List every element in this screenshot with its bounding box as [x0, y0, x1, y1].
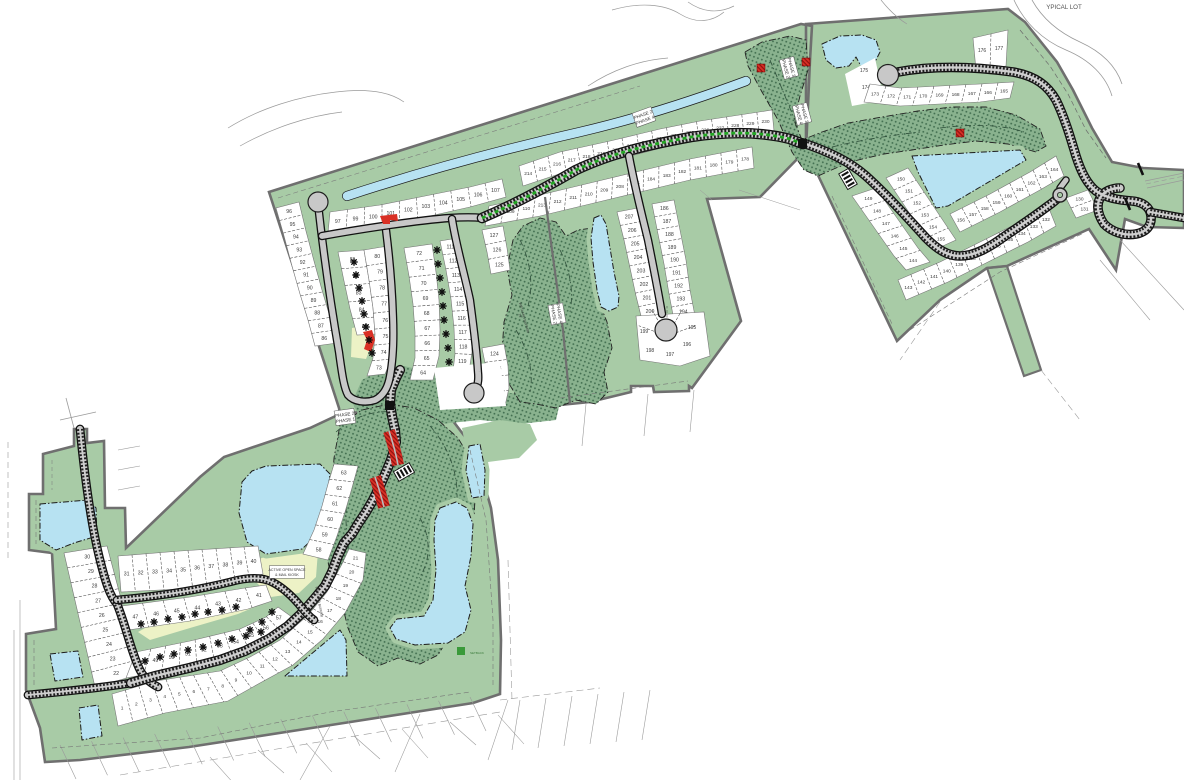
svg-text:117: 117 — [459, 330, 467, 336]
svg-text:36: 36 — [194, 566, 200, 572]
svg-text:204: 204 — [634, 255, 643, 261]
svg-text:215: 215 — [539, 166, 547, 172]
svg-text:43: 43 — [215, 602, 221, 608]
svg-text:171: 171 — [903, 94, 911, 100]
svg-text:212: 212 — [554, 199, 562, 205]
svg-text:114: 114 — [454, 287, 462, 293]
svg-text:24: 24 — [106, 642, 112, 648]
svg-text:60: 60 — [327, 517, 333, 523]
svg-text:176: 176 — [978, 48, 987, 54]
svg-text:33: 33 — [152, 570, 158, 576]
svg-text:27: 27 — [95, 598, 101, 604]
svg-text:172: 172 — [887, 94, 895, 100]
svg-text:139: 139 — [955, 262, 963, 268]
svg-text:147: 147 — [882, 221, 890, 227]
svg-text:102: 102 — [404, 208, 413, 214]
svg-text:195: 195 — [688, 325, 697, 331]
svg-text:170: 170 — [919, 94, 927, 100]
svg-text:154: 154 — [929, 225, 937, 231]
svg-text:91: 91 — [303, 273, 309, 279]
svg-text:179: 179 — [725, 160, 733, 166]
svg-text:37: 37 — [208, 564, 214, 570]
svg-text:86: 86 — [321, 336, 327, 342]
svg-text:144: 144 — [909, 258, 917, 264]
svg-text:87: 87 — [318, 323, 324, 329]
svg-text:1: 1 — [121, 706, 124, 712]
svg-text:178: 178 — [741, 157, 749, 163]
svg-text:118: 118 — [459, 345, 467, 351]
svg-text:13: 13 — [285, 649, 291, 655]
svg-text:90: 90 — [307, 285, 313, 291]
svg-text:206: 206 — [628, 228, 637, 234]
svg-text:YPICAL LOT: YPICAL LOT — [1046, 4, 1082, 11]
svg-text:70: 70 — [421, 281, 427, 287]
svg-text:34: 34 — [166, 569, 172, 575]
svg-text:15: 15 — [307, 630, 313, 636]
svg-text:132: 132 — [1042, 217, 1050, 223]
svg-text:156: 156 — [957, 218, 965, 224]
svg-text:127: 127 — [490, 233, 499, 239]
svg-text:57: 57 — [276, 615, 282, 621]
svg-text:196: 196 — [683, 342, 692, 348]
svg-text:74: 74 — [381, 350, 387, 356]
svg-text:165: 165 — [1000, 89, 1008, 95]
svg-text:8: 8 — [221, 683, 224, 689]
svg-text:62: 62 — [336, 486, 342, 492]
svg-text:230: 230 — [761, 119, 769, 125]
svg-text:30: 30 — [84, 555, 90, 561]
svg-text:68: 68 — [424, 311, 430, 317]
svg-text:207: 207 — [625, 215, 634, 221]
svg-text:40: 40 — [251, 559, 257, 565]
svg-text:184: 184 — [647, 177, 655, 183]
svg-text:190: 190 — [670, 258, 679, 264]
svg-text:96: 96 — [286, 209, 292, 215]
svg-text:5: 5 — [178, 691, 181, 697]
svg-text:229: 229 — [746, 121, 754, 127]
svg-text:209: 209 — [600, 188, 608, 194]
svg-text:124: 124 — [490, 351, 499, 357]
svg-text:157: 157 — [969, 212, 977, 218]
svg-text:88: 88 — [314, 311, 320, 317]
svg-text:29: 29 — [88, 569, 94, 575]
svg-text:10: 10 — [246, 671, 252, 677]
svg-text:71: 71 — [419, 266, 425, 272]
svg-text:4: 4 — [163, 694, 166, 700]
svg-text:131: 131 — [1080, 207, 1088, 213]
svg-text:150: 150 — [897, 177, 905, 183]
svg-text:79: 79 — [377, 270, 383, 276]
svg-text:42: 42 — [236, 598, 242, 604]
svg-text:25: 25 — [103, 627, 109, 633]
svg-text:216: 216 — [553, 162, 561, 168]
svg-text:47: 47 — [133, 614, 139, 620]
svg-text:11: 11 — [260, 664, 265, 670]
svg-text:32: 32 — [138, 570, 144, 576]
svg-text:187: 187 — [663, 219, 672, 225]
svg-text:105: 105 — [456, 197, 465, 203]
svg-text:115: 115 — [456, 301, 464, 307]
svg-text:7: 7 — [207, 686, 210, 692]
svg-text:22: 22 — [113, 671, 119, 677]
svg-text:35: 35 — [180, 567, 186, 573]
svg-text:186: 186 — [660, 206, 669, 212]
svg-text:SETBACK: SETBACK — [470, 651, 484, 655]
svg-text:202: 202 — [640, 282, 649, 288]
svg-text:152: 152 — [913, 201, 921, 207]
svg-text:208: 208 — [616, 184, 624, 190]
svg-text:161: 161 — [1016, 187, 1024, 193]
svg-text:141: 141 — [930, 274, 938, 280]
svg-text:41: 41 — [256, 593, 262, 599]
svg-text:155: 155 — [937, 237, 945, 243]
svg-text:159: 159 — [992, 200, 1000, 206]
svg-text:119: 119 — [458, 359, 466, 365]
svg-text:167: 167 — [968, 91, 976, 97]
svg-text:142: 142 — [917, 279, 925, 285]
svg-text:93: 93 — [296, 247, 302, 253]
svg-text:214: 214 — [524, 171, 532, 177]
svg-text:2: 2 — [135, 702, 138, 708]
svg-text:58: 58 — [316, 547, 322, 553]
svg-text:143: 143 — [904, 285, 912, 291]
svg-text:182: 182 — [678, 169, 686, 175]
svg-text:14: 14 — [296, 639, 302, 645]
svg-text:94: 94 — [293, 235, 299, 241]
svg-text:198: 198 — [646, 348, 655, 354]
svg-text:191: 191 — [672, 271, 681, 277]
svg-text:168: 168 — [952, 92, 960, 98]
svg-text:130: 130 — [1075, 197, 1083, 203]
svg-text:201: 201 — [643, 296, 652, 302]
svg-text:28: 28 — [92, 584, 98, 590]
svg-text:183: 183 — [663, 173, 671, 179]
svg-text:31: 31 — [124, 571, 130, 577]
svg-text:106: 106 — [474, 193, 483, 199]
svg-text:173: 173 — [871, 92, 879, 98]
svg-text:116: 116 — [457, 316, 465, 322]
svg-text:ACTIVE OPEN SPACE: ACTIVE OPEN SPACE — [268, 568, 306, 572]
svg-text:100: 100 — [369, 214, 378, 220]
svg-text:197: 197 — [666, 352, 675, 358]
svg-text:107: 107 — [491, 188, 500, 194]
svg-text:63: 63 — [341, 471, 347, 477]
svg-text:193: 193 — [676, 297, 685, 303]
svg-text:76: 76 — [382, 318, 388, 324]
svg-text:210: 210 — [585, 192, 593, 198]
svg-text:73: 73 — [376, 365, 382, 371]
svg-text:153: 153 — [921, 213, 929, 219]
svg-text:78: 78 — [379, 286, 385, 292]
svg-text:45: 45 — [174, 609, 180, 615]
svg-text:20: 20 — [349, 570, 355, 576]
svg-text:92: 92 — [300, 260, 306, 266]
svg-text:9: 9 — [235, 677, 238, 683]
svg-text:72: 72 — [416, 251, 422, 257]
svg-text:67: 67 — [424, 326, 430, 332]
svg-text:56: 56 — [263, 626, 269, 632]
svg-text:180: 180 — [710, 163, 718, 169]
svg-text:59: 59 — [322, 532, 328, 538]
svg-text:6: 6 — [192, 689, 195, 695]
svg-text:125: 125 — [495, 263, 504, 269]
svg-text:199: 199 — [640, 329, 649, 335]
svg-text:104: 104 — [439, 201, 448, 207]
svg-text:133: 133 — [1030, 224, 1038, 230]
svg-text:175: 175 — [860, 68, 869, 74]
svg-text:113: 113 — [452, 273, 460, 279]
svg-text:217: 217 — [568, 158, 576, 164]
svg-text:164: 164 — [1050, 167, 1058, 173]
svg-text:148: 148 — [873, 209, 881, 215]
svg-text:80: 80 — [374, 254, 380, 260]
svg-text:3: 3 — [149, 698, 152, 704]
svg-text:162: 162 — [1027, 181, 1035, 187]
svg-text:19: 19 — [343, 583, 349, 589]
svg-text:23: 23 — [110, 657, 116, 663]
svg-text:169: 169 — [935, 93, 943, 99]
svg-text:21: 21 — [353, 556, 359, 562]
svg-text:126: 126 — [493, 248, 502, 254]
svg-text:17: 17 — [327, 608, 333, 614]
svg-text:160: 160 — [1004, 193, 1012, 199]
svg-text:& MAIL KIOSK: & MAIL KIOSK — [275, 573, 299, 577]
svg-text:192: 192 — [674, 284, 683, 290]
svg-text:158: 158 — [981, 206, 989, 212]
svg-text:99: 99 — [353, 217, 359, 223]
svg-text:26: 26 — [99, 613, 105, 619]
svg-text:12: 12 — [272, 657, 278, 663]
svg-text:203: 203 — [637, 269, 646, 275]
svg-text:75: 75 — [383, 334, 389, 340]
svg-text:66: 66 — [424, 341, 430, 347]
svg-text:89: 89 — [311, 298, 317, 304]
svg-text:140: 140 — [943, 268, 951, 274]
svg-text:149: 149 — [864, 196, 872, 202]
svg-text:163: 163 — [1039, 174, 1047, 180]
svg-text:38: 38 — [223, 562, 229, 568]
svg-text:61: 61 — [332, 502, 338, 508]
svg-text:97: 97 — [335, 219, 341, 225]
svg-text:205: 205 — [631, 242, 640, 248]
svg-text:95: 95 — [290, 222, 296, 228]
svg-text:146: 146 — [891, 234, 899, 240]
svg-text:77: 77 — [381, 302, 387, 308]
svg-text:65: 65 — [424, 356, 430, 362]
svg-text:166: 166 — [984, 90, 992, 96]
svg-text:18: 18 — [336, 596, 342, 602]
svg-text:188: 188 — [665, 232, 674, 238]
svg-text:16: 16 — [318, 619, 324, 625]
svg-text:189: 189 — [668, 245, 677, 251]
svg-text:64: 64 — [420, 371, 426, 377]
svg-text:181: 181 — [694, 166, 702, 172]
svg-text:103: 103 — [421, 204, 430, 210]
svg-text:110: 110 — [522, 206, 530, 212]
svg-text:177: 177 — [995, 46, 1004, 52]
svg-text:69: 69 — [423, 296, 429, 302]
svg-text:145: 145 — [899, 246, 907, 252]
svg-text:211: 211 — [569, 195, 577, 201]
svg-text:151: 151 — [905, 189, 913, 195]
svg-text:46: 46 — [153, 612, 159, 618]
svg-text:39: 39 — [237, 561, 243, 567]
